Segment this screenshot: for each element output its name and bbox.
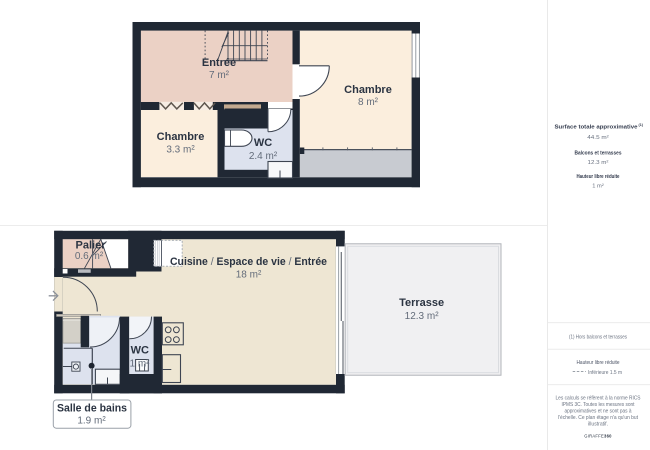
svg-text:illustratif.: illustratif.: [588, 422, 608, 428]
svg-text:8 m²: 8 m²: [358, 97, 379, 108]
svg-text:Entrée: Entrée: [202, 57, 236, 69]
svg-text:12.3 m²: 12.3 m²: [405, 311, 440, 322]
svg-text:Chambre: Chambre: [157, 131, 205, 143]
svg-text:7 m²: 7 m²: [209, 70, 230, 81]
svg-text:0.6 m²: 0.6 m²: [75, 251, 104, 262]
svg-text:3.3 m²: 3.3 m²: [166, 145, 195, 156]
svg-text:WC: WC: [131, 345, 149, 357]
svg-text:18 m²: 18 m²: [236, 270, 262, 281]
svg-text:12.3 m²: 12.3 m²: [588, 160, 609, 166]
svg-text:Surface totale approximative: Surface totale approximative: [555, 125, 638, 131]
svg-text:Inférieure 1.5 m: Inférieure 1.5 m: [588, 370, 622, 376]
svg-text:Palier: Palier: [76, 240, 107, 252]
svg-text:approximatives et ne sont pas: approximatives et ne sont pas à: [565, 409, 632, 415]
svg-text:1.9 m²: 1.9 m²: [77, 416, 106, 427]
svg-text:Balcons et terrasses: Balcons et terrasses: [575, 150, 622, 156]
svg-text:Cuisine / Espace de vie / Entr: Cuisine / Espace de vie / Entrée: [170, 256, 327, 268]
svg-text:Salle de bains: Salle de bains: [57, 403, 127, 415]
svg-text:Hauteur libre réduite: Hauteur libre réduite: [577, 360, 620, 366]
svg-text:Chambre: Chambre: [344, 84, 392, 96]
svg-text:Terrasse: Terrasse: [399, 297, 444, 309]
svg-text:Hauteur libre réduite: Hauteur libre réduite: [577, 174, 620, 180]
svg-text:WC: WC: [254, 137, 272, 149]
svg-text:IPMS 3C. Toutes les mesures so: IPMS 3C. Toutes les mesures sont: [562, 402, 636, 408]
svg-text:1 m²: 1 m²: [592, 184, 604, 190]
svg-text:44.5 m²: 44.5 m²: [587, 135, 609, 141]
svg-text:GIRAFFE360: GIRAFFE360: [584, 434, 612, 440]
svg-text:(1) Hors balcons et terrasses: (1) Hors balcons et terrasses: [569, 335, 627, 341]
svg-text:1 m²: 1 m²: [130, 359, 151, 370]
svg-text:l'échelle. Ce plan étage n'a q: l'échelle. Ce plan étage n'a qu'un but: [558, 415, 639, 421]
svg-text:2.4 m²: 2.4 m²: [249, 151, 278, 162]
svg-text:Les calculs se réfèrent à la n: Les calculs se réfèrent à la norme RICS: [556, 396, 641, 402]
